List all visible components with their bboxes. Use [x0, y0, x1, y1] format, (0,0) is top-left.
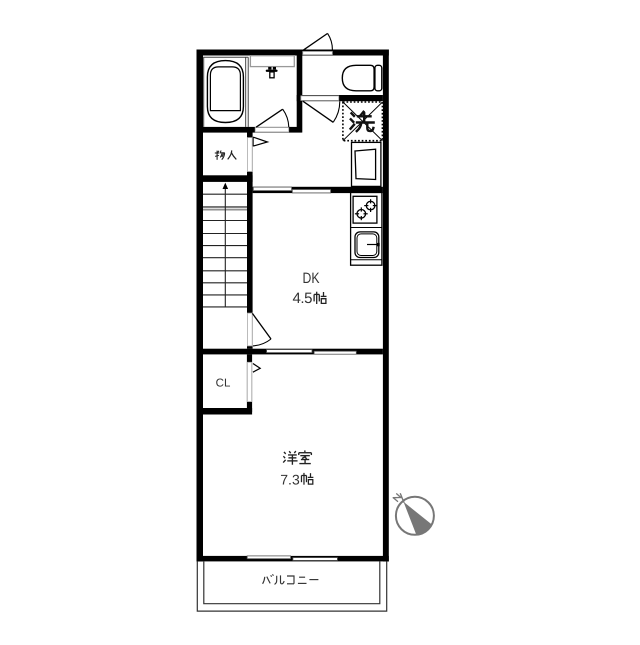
- svg-text:7.3: 7.3: [280, 471, 300, 487]
- svg-text:4.5: 4.5: [293, 290, 313, 307]
- svg-text:DK: DK: [303, 270, 320, 287]
- svg-text:CL: CL: [216, 377, 231, 389]
